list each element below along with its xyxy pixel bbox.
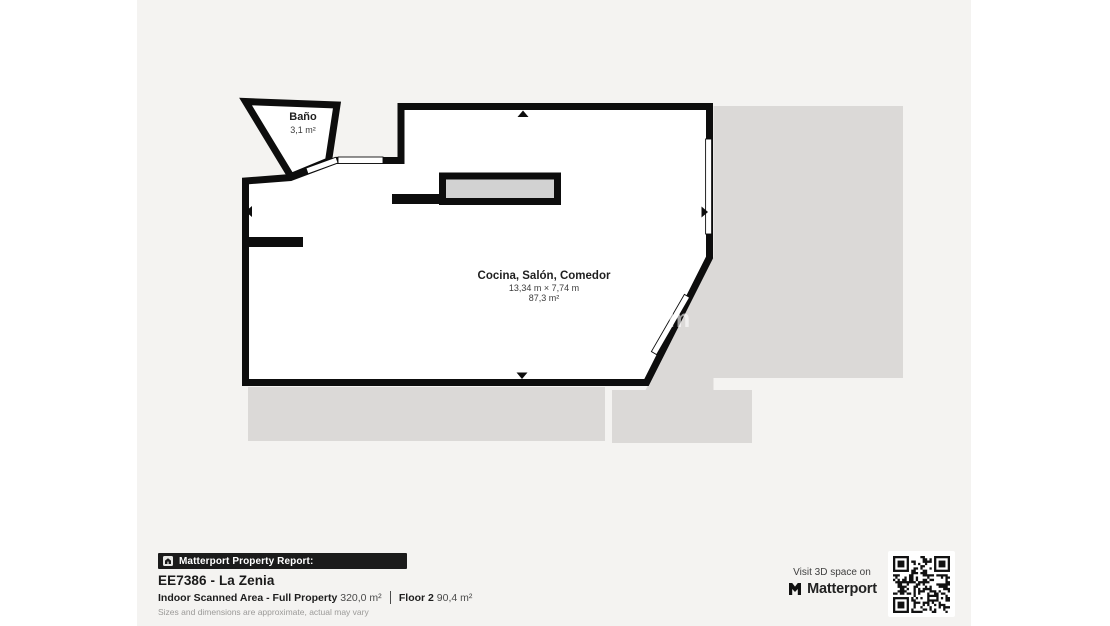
interior-wall-stub-counter xyxy=(392,194,442,204)
unscanned-area-bottom-left xyxy=(248,387,605,441)
main-room-label: Cocina, Salón, Comedor xyxy=(478,270,611,282)
qr-finder-bottom-left xyxy=(893,597,909,613)
matterport-logo-icon xyxy=(787,581,803,597)
matterport-brand-link[interactable]: Matterport xyxy=(780,581,884,597)
bathroom-area: 3,1 m² xyxy=(290,125,316,135)
house-icon xyxy=(163,556,173,566)
visit-3d-text: Visit 3D space on xyxy=(780,567,884,578)
floorplan-svg: m Baño 3,1 m² Cocina, Salón, Comedor 13,… xyxy=(0,0,1110,626)
window-right xyxy=(706,139,712,234)
bathroom-label: Baño xyxy=(289,111,317,123)
floor-label: Floor 2 xyxy=(399,592,434,604)
window-top xyxy=(338,157,383,164)
main-room-area: 87,3 m² xyxy=(529,293,560,303)
unscanned-area-right xyxy=(714,106,904,378)
qr-finder-top-left xyxy=(893,556,909,572)
report-bar-label: Matterport Property Report: xyxy=(179,556,313,567)
property-title: EE7386 - La Zenia xyxy=(158,573,275,588)
unscanned-area-bottom-middle xyxy=(612,390,752,443)
watermark-letter: m xyxy=(668,305,690,333)
kitchen-counter xyxy=(443,176,558,202)
qr-code[interactable] xyxy=(888,551,955,617)
scanned-area-value: 320,0 m² xyxy=(340,592,381,604)
main-room-dimensions: 13,34 m × 7,74 m xyxy=(509,283,579,293)
disclaimer-text: Sizes and dimensions are approximate, ac… xyxy=(158,607,369,617)
area-info-line: Indoor Scanned Area - Full Property 320,… xyxy=(158,591,472,604)
scanned-area-label: Indoor Scanned Area - Full Property xyxy=(158,592,337,604)
qr-finder-top-right xyxy=(934,556,950,572)
report-header-bar: Matterport Property Report: xyxy=(158,553,407,569)
matterport-wordmark: Matterport xyxy=(807,581,877,597)
floor-value: 90,4 m² xyxy=(437,592,473,604)
divider xyxy=(390,591,391,604)
interior-wall-stub-left xyxy=(244,237,303,247)
